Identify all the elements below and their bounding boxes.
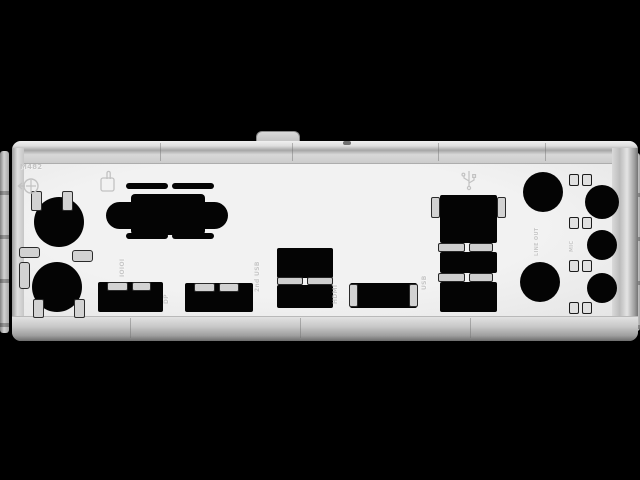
side-finger xyxy=(431,197,440,218)
cutout-hdmi xyxy=(350,283,417,308)
frame-seam xyxy=(470,318,471,338)
knockout-slit xyxy=(126,183,168,189)
bracket-knockout xyxy=(569,302,579,314)
serial-port-label: IOIOI xyxy=(119,259,126,277)
cutout-usb-stack-top xyxy=(277,248,333,278)
knockout-oval-port-center xyxy=(131,194,205,235)
ground-tab xyxy=(132,282,151,291)
frame-seam xyxy=(300,318,301,338)
shield-frame-left xyxy=(12,148,24,316)
frame-seam xyxy=(438,143,439,161)
audio-jack-hole xyxy=(520,262,560,302)
cutout-usb-mid xyxy=(440,252,497,273)
product-photo: M482 IOIOI DP 2nd USB HDMI xyxy=(0,0,640,480)
ps2-keyboard-mouse-icon xyxy=(17,175,41,197)
knockout-slit xyxy=(126,233,168,239)
shield-left-flange xyxy=(0,151,9,333)
bracket-knockout xyxy=(582,260,592,272)
embossed-hand-icon xyxy=(98,170,118,194)
dp-label: DP xyxy=(163,294,170,304)
hdmi-label: HDMI xyxy=(332,285,339,304)
bracket-knockout xyxy=(569,260,579,272)
ground-tab xyxy=(107,282,128,291)
cutout-usb-low xyxy=(440,282,497,312)
bracket-knockout xyxy=(569,174,579,186)
usb-trident-icon xyxy=(457,168,481,192)
usb-divider-tab xyxy=(438,273,465,282)
bracket-knockout xyxy=(582,217,592,229)
knockout-slit xyxy=(172,183,214,189)
usb-divider-tab xyxy=(438,243,465,252)
usb-divider-tab xyxy=(277,277,303,285)
shield-frame-bottom xyxy=(12,316,638,341)
spring-finger xyxy=(62,191,73,211)
audio-jack-hole xyxy=(523,172,563,212)
frame-notch xyxy=(343,141,351,145)
side-finger xyxy=(497,197,506,218)
audio-jack-hole xyxy=(587,230,617,260)
frame-seam xyxy=(292,143,293,161)
cutout-usb-stack-bottom xyxy=(277,285,333,308)
small-slot xyxy=(72,250,93,262)
bracket-knockout xyxy=(569,217,579,229)
frame-seam xyxy=(160,143,161,161)
side-finger xyxy=(409,284,418,307)
audio-jack-hole xyxy=(585,185,619,219)
audio-label-mic: MIC xyxy=(569,241,575,252)
bracket-knockout xyxy=(582,302,592,314)
audio-label-lineout: LINE OUT xyxy=(534,227,540,256)
spring-finger xyxy=(74,299,85,318)
knockout-slit xyxy=(172,233,214,239)
frame-seam xyxy=(130,318,131,338)
usb-divider-tab xyxy=(469,273,493,282)
spring-finger xyxy=(33,299,44,318)
ground-tab xyxy=(194,283,215,292)
ground-tab xyxy=(219,283,239,292)
audio-jack-hole xyxy=(587,273,617,303)
small-slot xyxy=(19,247,40,258)
frame-seam xyxy=(545,143,546,161)
side-finger xyxy=(349,284,358,307)
usb2-label: 2nd USB xyxy=(254,261,261,292)
usb-label: USB xyxy=(421,275,428,290)
part-number: M482 xyxy=(20,163,42,171)
usb-divider-tab xyxy=(307,277,333,285)
cutout-lan xyxy=(440,195,497,243)
usb-divider-tab xyxy=(469,243,493,252)
bracket-knockout xyxy=(582,174,592,186)
vertical-slot xyxy=(19,262,30,289)
